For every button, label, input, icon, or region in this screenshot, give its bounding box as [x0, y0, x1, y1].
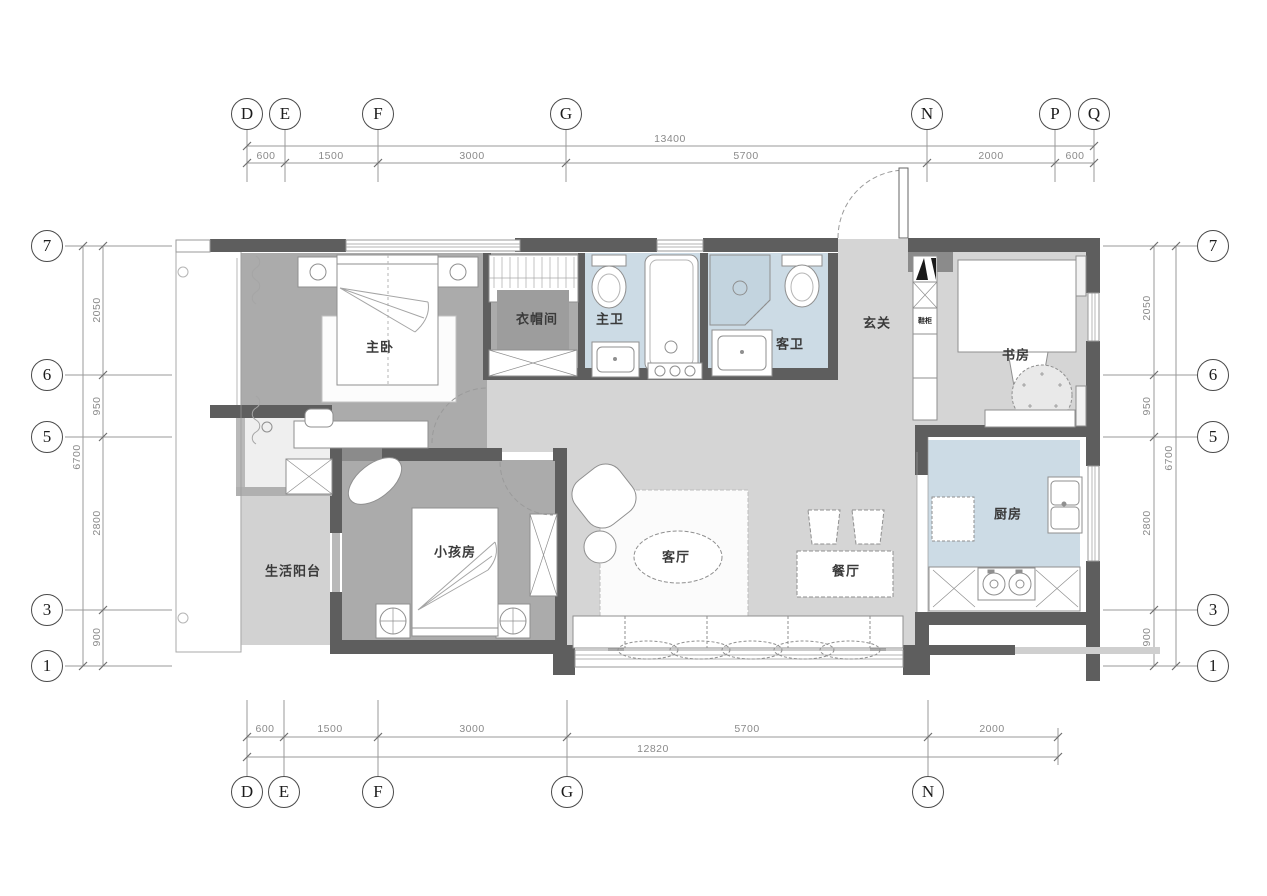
axis-bubble-top-d: D: [231, 98, 263, 130]
room-label-living: 客厅: [662, 547, 690, 566]
room-label-master-bedroom: 主卧: [366, 337, 394, 356]
axis-bubble-left-1: 1: [31, 650, 63, 682]
axis-bubble-left-6: 6: [31, 359, 63, 391]
dim-left-2800: 2800: [91, 510, 103, 535]
axis-bubble-bottom-g: G: [551, 776, 583, 808]
dim-top-3000: 3000: [459, 150, 484, 162]
room-label-entry: 玄关: [863, 313, 891, 332]
dim-bottom-5700: 5700: [734, 723, 759, 735]
dim-right-2800: 2800: [1141, 510, 1153, 535]
dim-top-2000: 2000: [978, 150, 1003, 162]
dim-top-1500: 1500: [318, 150, 343, 162]
floor-plan-geometry: [0, 0, 1267, 896]
axis-bubble-right-7: 7: [1197, 230, 1229, 262]
dim-bottom-1500: 1500: [317, 723, 342, 735]
axis-bubble-top-e: E: [269, 98, 301, 130]
dim-left-950: 950: [91, 396, 103, 415]
dim-left-2050: 2050: [91, 297, 103, 322]
dim-top-5700: 5700: [733, 150, 758, 162]
dim-left-overall: 6700: [71, 444, 83, 469]
axis-bubble-right-3: 3: [1197, 594, 1229, 626]
room-label-dining: 餐厅: [832, 561, 860, 580]
dim-bottom-3000: 3000: [459, 723, 484, 735]
dim-right-900: 900: [1141, 627, 1153, 646]
axis-bubble-bottom-d: D: [231, 776, 263, 808]
dim-bottom-2000: 2000: [979, 723, 1004, 735]
room-label-guest-bath: 客卫: [776, 334, 804, 353]
dim-right-2050: 2050: [1141, 295, 1153, 320]
room-label-kitchen: 厨房: [994, 504, 1022, 523]
axis-bubble-top-f: F: [362, 98, 394, 130]
axis-bubble-top-q: Q: [1078, 98, 1110, 130]
room-label-balcony: 生活阳台: [265, 561, 321, 580]
axis-bubble-right-6: 6: [1197, 359, 1229, 391]
axis-bubble-left-7: 7: [31, 230, 63, 262]
axis-bubble-bottom-e: E: [268, 776, 300, 808]
dim-right-overall: 6700: [1163, 445, 1175, 470]
room-label-master-bath: 主卫: [596, 309, 624, 328]
axis-bubble-bottom-f: F: [362, 776, 394, 808]
dim-top-overall: 13400: [654, 133, 686, 145]
axis-bubble-bottom-n: N: [912, 776, 944, 808]
room-label-shoe-cabinet: 鞋柜: [918, 316, 932, 326]
dim-right-950: 950: [1141, 396, 1153, 415]
dim-bottom-600: 600: [255, 723, 274, 735]
axis-bubble-top-p: P: [1039, 98, 1071, 130]
axis-bubble-right-5: 5: [1197, 421, 1229, 453]
dim-bottom-overall: 12820: [637, 743, 669, 755]
dim-top-600b: 600: [1065, 150, 1084, 162]
floor-plan-page: D E F G N P Q D E F G N 7 6 5 3 1 7 6 5 …: [0, 0, 1267, 896]
axis-bubble-right-1: 1: [1197, 650, 1229, 682]
dim-top-600a: 600: [256, 150, 275, 162]
room-label-cloakroom: 衣帽间: [516, 309, 558, 328]
axis-bubble-left-3: 3: [31, 594, 63, 626]
axis-bubble-top-g: G: [550, 98, 582, 130]
room-label-study: 书房: [1002, 345, 1030, 364]
room-label-kids-room: 小孩房: [434, 542, 476, 561]
axis-bubble-top-n: N: [911, 98, 943, 130]
dim-left-900: 900: [91, 627, 103, 646]
axis-bubble-left-5: 5: [31, 421, 63, 453]
